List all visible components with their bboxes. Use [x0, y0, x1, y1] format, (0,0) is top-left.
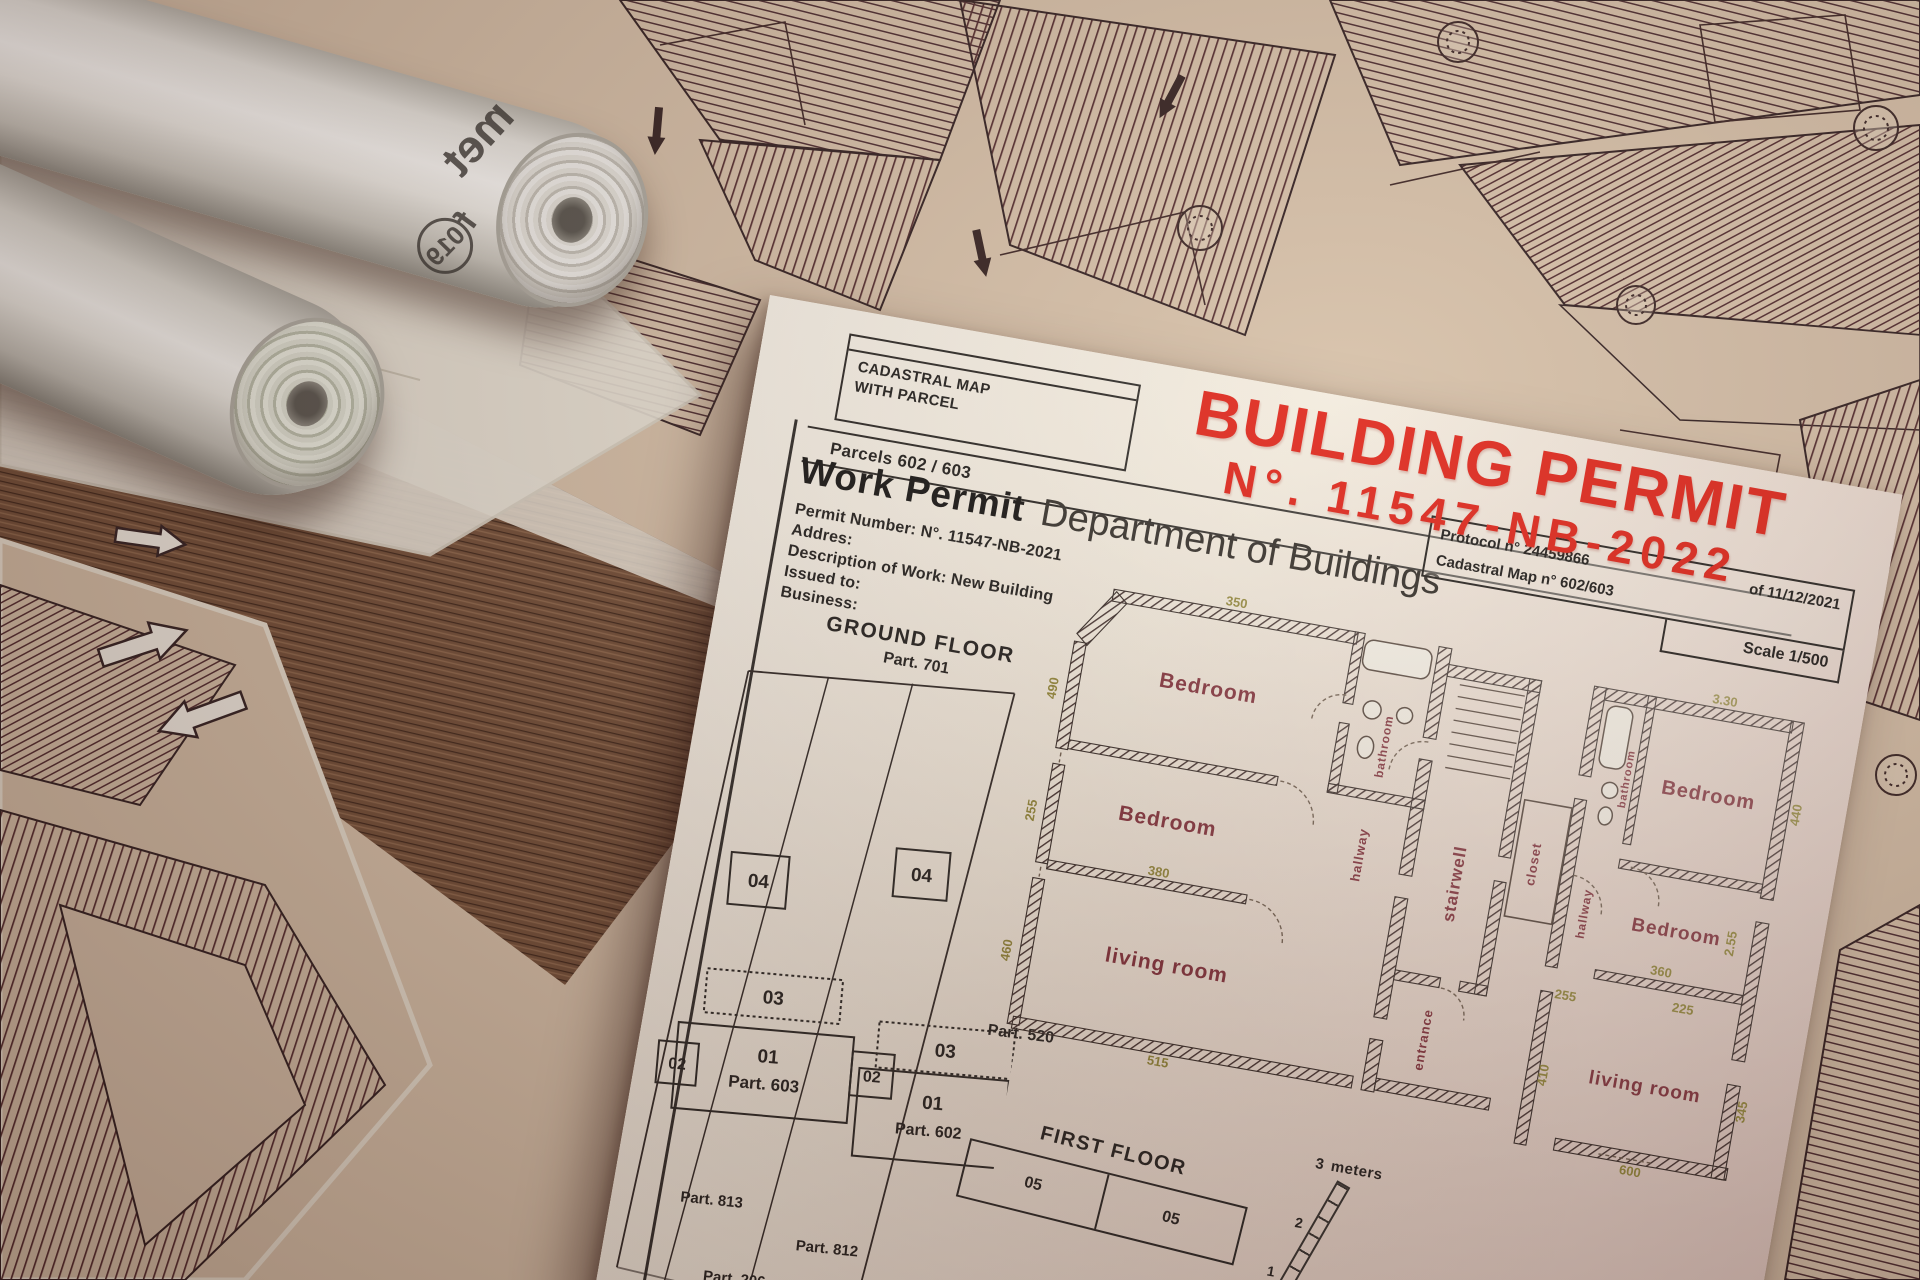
stair-treads [1445, 685, 1525, 779]
svg-text:255: 255 [1553, 986, 1577, 1005]
svg-text:living room: living room [1103, 943, 1229, 987]
svg-text:02: 02 [668, 1055, 687, 1073]
svg-text:460: 460 [997, 938, 1016, 962]
svg-text:225: 225 [1671, 1000, 1695, 1019]
svg-text:Part. 602: Part. 602 [894, 1120, 962, 1143]
svg-text:Part. 813: Part. 813 [680, 1188, 744, 1211]
first-floor-section: FIRST FLOOR 05 05 [948, 1104, 1281, 1272]
svg-text:Bedroom: Bedroom [1630, 914, 1723, 950]
background-roof [620, 0, 1000, 160]
ruler-low-number: 1 [1266, 1263, 1276, 1280]
background-roof [1460, 125, 1920, 335]
photo-scene: met f 019 CADASTRAL MAP WITH PARCEL Parc… [0, 0, 1920, 1280]
svg-text:Part. 603: Part. 603 [728, 1072, 800, 1097]
svg-text:600: 600 [1618, 1162, 1642, 1181]
ruler-top-number: 3 [1314, 1155, 1326, 1173]
svg-text:410: 410 [1534, 1063, 1553, 1087]
svg-text:Bedroom: Bedroom [1117, 802, 1219, 842]
svg-text:03: 03 [934, 1040, 957, 1063]
svg-text:Bedroom: Bedroom [1157, 669, 1259, 709]
svg-text:living room: living room [1587, 1067, 1702, 1107]
svg-text:hallway: hallway [1347, 827, 1371, 883]
svg-text:255: 255 [1022, 798, 1041, 822]
svg-text:closet: closet [1522, 841, 1544, 887]
svg-text:Bedroom: Bedroom [1660, 776, 1757, 814]
svg-text:515: 515 [1146, 1052, 1170, 1071]
svg-text:350: 350 [1225, 593, 1249, 612]
svg-text:345: 345 [1732, 1100, 1751, 1124]
svg-text:440: 440 [1787, 803, 1806, 827]
svg-text:02: 02 [862, 1068, 881, 1086]
roll-core-hole [279, 375, 334, 433]
svg-text:entrance: entrance [1410, 1008, 1436, 1072]
svg-text:Part. 812: Part. 812 [795, 1237, 859, 1260]
roll-core-hole [547, 192, 598, 247]
svg-text:01: 01 [921, 1093, 944, 1116]
svg-text:01: 01 [757, 1046, 780, 1069]
scale-ruler: 3meters 2 1 [1277, 1155, 1445, 1280]
svg-text:360: 360 [1649, 962, 1673, 981]
svg-text:stairwell: stairwell [1439, 844, 1471, 923]
background-roof [960, 0, 1335, 335]
svg-text:04: 04 [747, 871, 770, 894]
svg-text:bathroom: bathroom [1372, 714, 1397, 779]
background-roof [700, 140, 940, 310]
svg-text:04: 04 [910, 865, 933, 888]
svg-text:490: 490 [1043, 676, 1062, 700]
parcel-bottom-labels: Part. 813 Part. 812 Part. 206 [666, 1184, 865, 1280]
svg-text:hallway: hallway [1573, 888, 1596, 940]
svg-text:Part. 206: Part. 206 [702, 1268, 766, 1280]
apartment-floor-plan: Bedroom bathroom Bedroom living room hal… [974, 566, 1830, 1202]
svg-text:03: 03 [762, 987, 785, 1010]
ruler-mid-number: 2 [1294, 1214, 1304, 1231]
svg-text:2.55: 2.55 [1721, 930, 1740, 958]
